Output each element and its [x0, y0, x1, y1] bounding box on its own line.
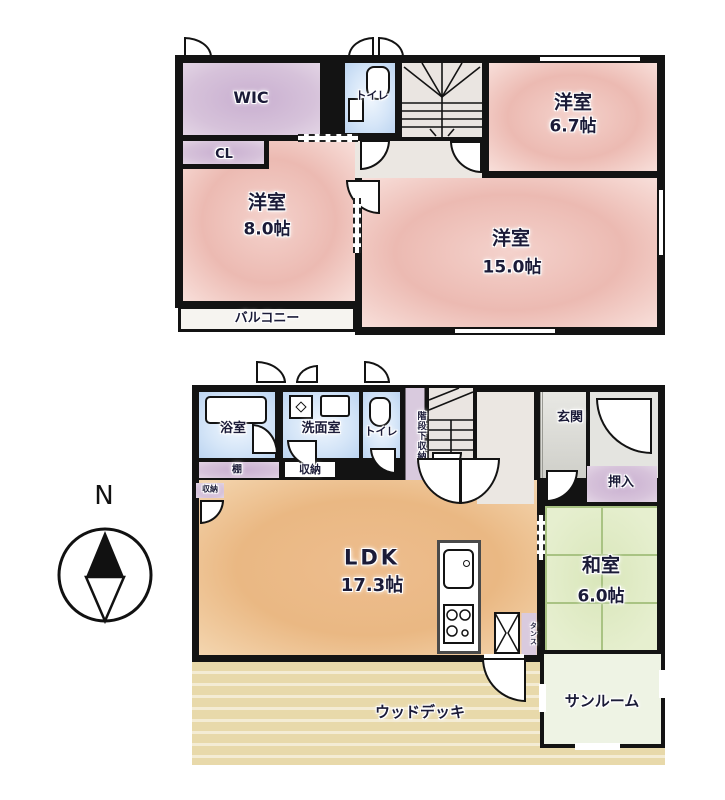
sunroom-label: サンルーム	[565, 693, 640, 710]
room-genkan	[540, 392, 586, 478]
washitsu-name: 和室	[582, 556, 620, 577]
toilet-bowl-1f-icon	[369, 397, 391, 427]
washitsu-area: 6.0帖	[577, 588, 624, 607]
room150-area: 15.0帖	[483, 259, 542, 278]
window	[455, 327, 555, 335]
wic-label: WIC	[233, 89, 268, 107]
closet-opening	[298, 134, 358, 142]
toilet-1f-label: トイレ	[365, 426, 398, 438]
oshiire-label: 押入	[608, 476, 634, 490]
window	[657, 190, 665, 255]
kitchen-sink-icon	[443, 549, 474, 589]
wood-deck-label: ウッドデッキ	[375, 704, 465, 721]
bath-label: 浴室	[220, 422, 246, 436]
cl-label: CL	[215, 148, 233, 162]
ldk-area: 17.3帖	[341, 576, 403, 596]
genkan-label: 玄関	[557, 411, 583, 425]
ldk-name: LDK	[344, 546, 400, 569]
storage-small-label: 収納	[202, 486, 218, 495]
bathtub-icon	[205, 396, 267, 424]
wall-opening	[353, 198, 361, 253]
toilet-2f-label: トイレ	[356, 90, 389, 102]
compass-icon	[55, 525, 155, 625]
balcony-label: バルコニー	[235, 312, 300, 326]
shelf-label: 棚	[232, 465, 242, 476]
compass-north-label: N	[94, 481, 113, 511]
bifold-doors-icon	[494, 612, 520, 654]
storage-label: 収納	[299, 464, 321, 476]
door-arc	[378, 37, 404, 57]
room80-name: 洋室	[248, 193, 286, 214]
stove-burners-icon	[443, 604, 474, 644]
door-arc	[184, 37, 212, 57]
floor-plan: WIC トイレ 洋室 6.7帖 CL 洋室 8.0帖 洋室 15.0帖 バルコニ…	[0, 0, 725, 800]
door-arc	[348, 37, 374, 57]
window	[539, 684, 546, 712]
room67-area: 6.7帖	[549, 118, 596, 137]
window	[540, 55, 640, 63]
washroom-label: 洗面室	[301, 422, 340, 436]
faucet-icon	[463, 560, 470, 567]
stairs-2f-treads	[402, 63, 482, 137]
window	[575, 743, 620, 750]
wall-opening	[537, 515, 545, 560]
room150-name: 洋室	[492, 229, 530, 250]
window	[659, 670, 666, 698]
door-arc	[364, 361, 390, 383]
room-washitsu	[545, 506, 657, 650]
vanity-icon	[320, 395, 350, 417]
door-arc	[296, 365, 318, 383]
room67-name: 洋室	[554, 93, 592, 114]
tansu-strip: タンス	[522, 613, 537, 655]
room80-area: 8.0帖	[243, 221, 290, 240]
room-150	[362, 178, 657, 327]
door-arc	[256, 361, 286, 383]
